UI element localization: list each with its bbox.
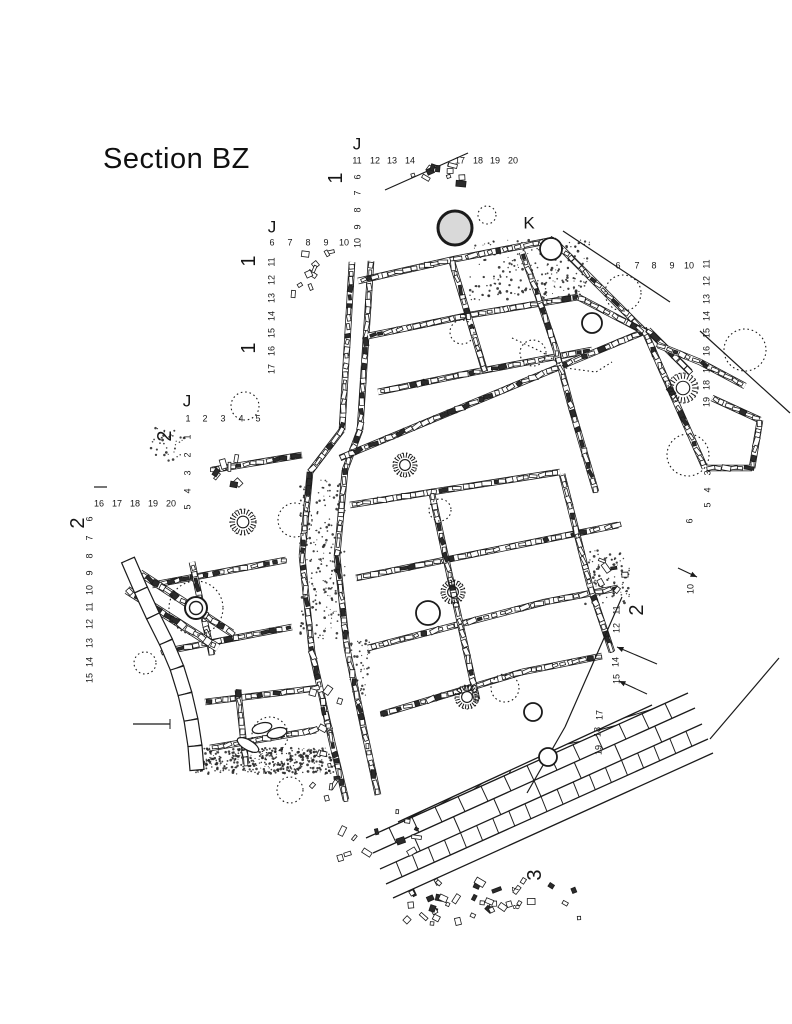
grid-number: 9	[354, 224, 363, 229]
grid-number: 19	[595, 745, 604, 755]
grid-number: 7	[354, 190, 363, 195]
grid-number: 6	[269, 239, 274, 248]
grid-number: 12	[268, 275, 277, 285]
section-line-number: 1	[239, 342, 259, 353]
grid-number: 16	[268, 346, 277, 356]
grid-number: 7	[512, 886, 521, 891]
grid-number: 17	[703, 363, 712, 373]
grid-number: 17	[112, 500, 122, 509]
grid-number: 12	[86, 619, 95, 629]
grid-number: 1	[184, 434, 193, 439]
grid-number: 8	[354, 207, 363, 212]
grid-number: 1	[185, 415, 190, 424]
grid-number: 9	[323, 239, 328, 248]
grid-number: 12	[613, 623, 622, 633]
grid-number: 5	[255, 415, 260, 424]
grid-number: 12	[370, 157, 380, 166]
section-line-number: 2	[155, 430, 175, 441]
grid-number: 10	[684, 262, 694, 271]
grid-number: 13	[86, 638, 95, 648]
grid-number: 2	[184, 452, 193, 457]
section-line-number: 1	[326, 172, 346, 183]
grid-number: 16	[94, 500, 104, 509]
grid-number: 14	[268, 311, 277, 321]
grid-number: 17	[455, 157, 465, 166]
grid-number: 4	[704, 487, 713, 492]
grid-letter: J	[268, 219, 277, 236]
grid-number: 14	[703, 311, 712, 321]
grid-number: 15	[86, 673, 95, 683]
page-title: Section BZ	[103, 143, 250, 176]
grid-number: 18	[473, 157, 483, 166]
grid-number: 19	[703, 397, 712, 407]
section-line-number: 2	[627, 604, 647, 615]
grid-number: 7	[634, 262, 639, 271]
grid-number: 11	[703, 259, 712, 268]
grid-number: 18	[594, 727, 603, 737]
grid-number: 8	[651, 262, 656, 271]
section-line-number: 3	[525, 869, 545, 880]
grid-number: 14	[86, 657, 95, 667]
grid-number: 19	[148, 500, 158, 509]
grid-number: 16	[703, 346, 712, 356]
grid-number: 11	[86, 602, 95, 611]
grid-number: 6	[615, 262, 620, 271]
grid-number: 10	[339, 239, 349, 248]
section-line-number: 1	[239, 255, 259, 266]
grid-number: 3	[220, 415, 225, 424]
grid-number: 6	[354, 174, 363, 179]
grid-number: 8	[305, 239, 310, 248]
grid-number: 18	[130, 500, 140, 509]
grid-number: 13	[268, 293, 277, 303]
grid-letter: J	[353, 136, 362, 153]
grid-number: 19	[490, 157, 500, 166]
grid-number: 13	[387, 157, 397, 166]
grid-number: 12	[703, 276, 712, 286]
grid-number: 4	[238, 415, 243, 424]
grid-number: 15	[613, 674, 622, 684]
grid-number: 20	[166, 500, 176, 509]
grid-number: 10	[354, 238, 363, 248]
grid-number: 15	[703, 328, 712, 338]
grid-number: 4	[184, 488, 193, 493]
grid-number: 11	[268, 257, 277, 266]
grid-number: 15	[268, 328, 277, 338]
grid-number: 2	[202, 415, 207, 424]
grid-number: 7	[86, 535, 95, 540]
grid-number: 17	[596, 710, 605, 720]
grid-number: 8	[86, 553, 95, 558]
grid-number: 8	[513, 904, 522, 909]
grid-number: 3	[704, 470, 713, 475]
grid-number: 3	[184, 470, 193, 475]
grid-number: 20	[508, 157, 518, 166]
grid-number: 14	[405, 157, 415, 166]
grid-number: 5	[184, 504, 193, 509]
grid-number: 13	[703, 294, 712, 304]
grid-number: 7	[287, 239, 292, 248]
grid-number: 11	[352, 157, 361, 166]
grid-number: 5	[704, 502, 713, 507]
grid-number: 17	[268, 364, 277, 374]
grid-number: 18	[703, 380, 712, 390]
grid-number: 10	[86, 585, 95, 595]
grid-number: 9	[669, 262, 674, 271]
grid-letter: J	[183, 393, 192, 410]
grid-number: 10	[687, 584, 696, 594]
grid-number: 6	[86, 516, 95, 521]
page: Section BZ JJJK1112223111213141718192067…	[0, 0, 792, 1024]
grid-number: 9	[86, 570, 95, 575]
grid-number: 14	[612, 657, 621, 667]
grid-letter: K	[523, 215, 534, 232]
grid-number: 6	[686, 518, 695, 523]
grid-number: 11	[613, 605, 622, 614]
